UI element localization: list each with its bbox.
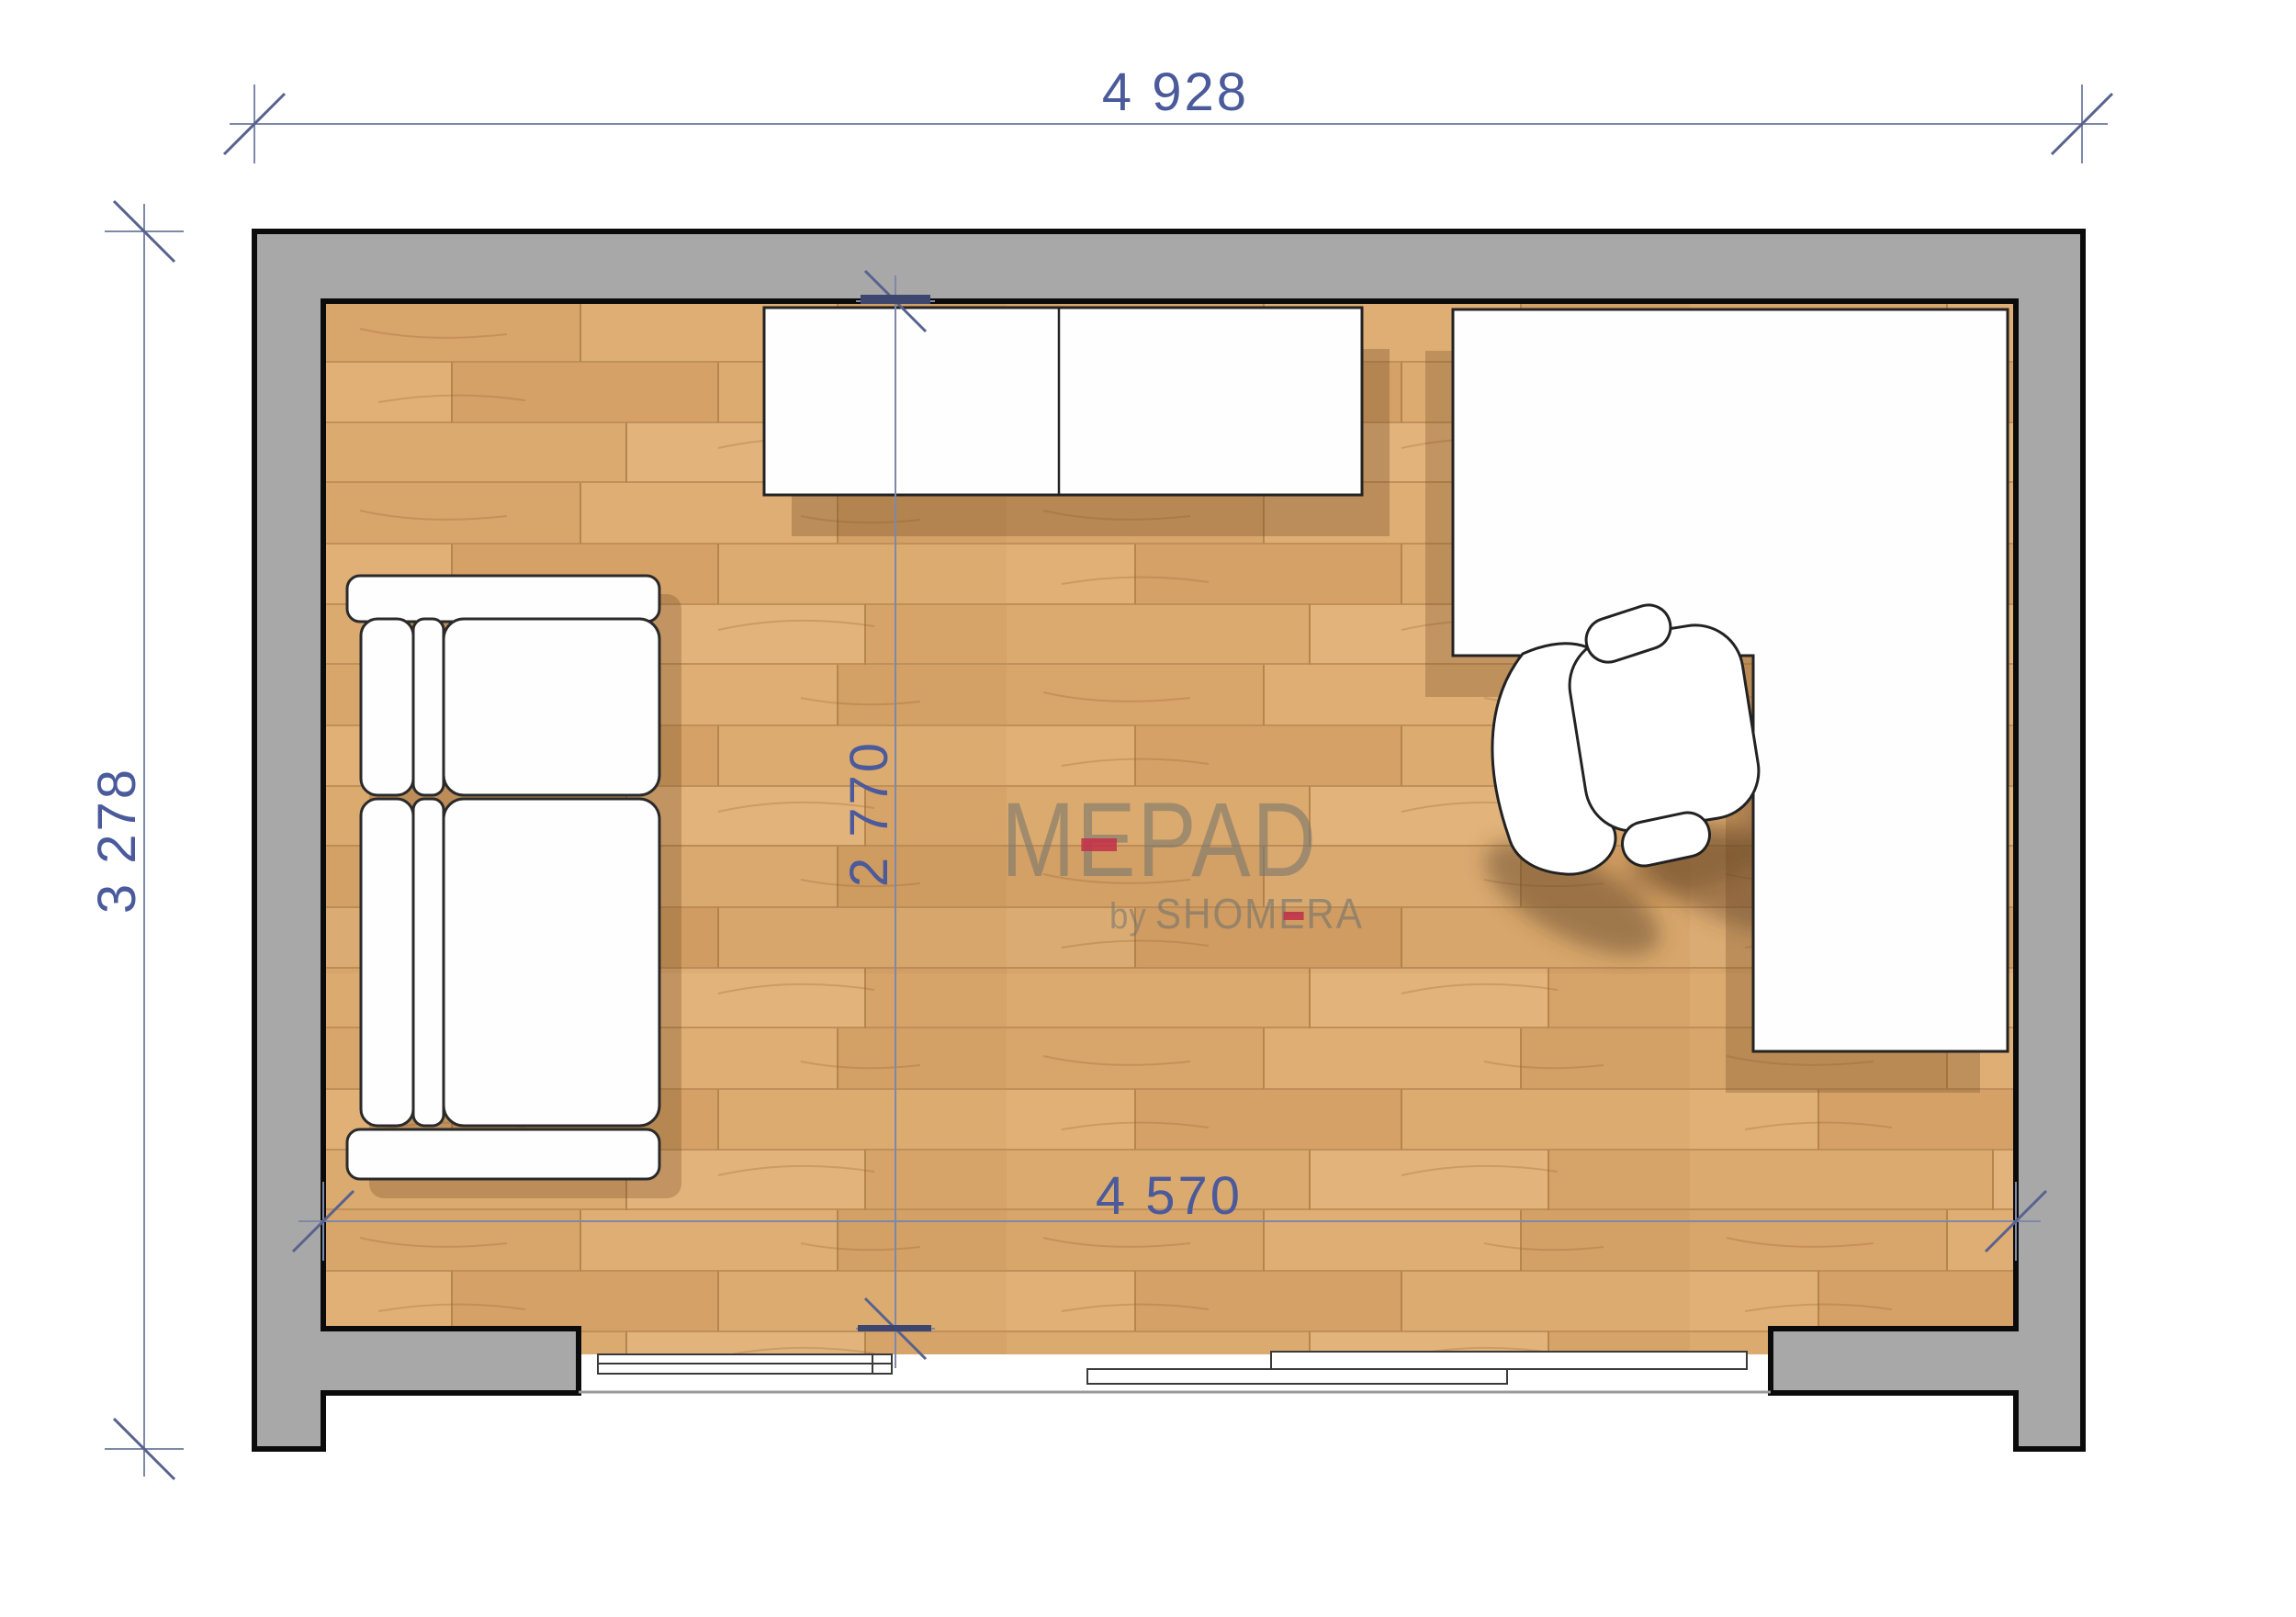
brand-logo: MEPAD bySHOMERA [1001, 788, 1387, 944]
sliding-door-leaf-outer [1271, 1352, 1747, 1369]
floor-plan: 4 928 3 278 2 770 4 570 MEPAD bySHOMERA [0, 0, 2296, 1617]
brand-logo-text: MEPAD [1001, 781, 1318, 899]
cabinet-body [764, 308, 1362, 495]
brand-logo-by: by [1109, 896, 1147, 937]
sofa-seat-cushion-2 [444, 799, 659, 1126]
sofa-armrest-bottom [347, 1129, 659, 1179]
brand-logo-red-dash [1081, 838, 1117, 851]
cabinet [764, 308, 1362, 495]
sofa-seat-cushion-1 [444, 619, 659, 795]
brand-logo-brand: SHOMERA [1155, 890, 1364, 938]
dim-label-outer-width: 4 928 [1084, 66, 1267, 119]
sofa-back-rail-2 [413, 799, 444, 1126]
dim-tick-bar-bottom [858, 1325, 931, 1331]
dim-label-outer-height: 3 278 [91, 730, 144, 950]
sliding-door-leaf-inner [1087, 1369, 1507, 1384]
sofa-armrest-top [347, 576, 659, 622]
brand-logo-name: MEPAD [1001, 788, 1318, 893]
brand-logo-subtitle: bySHOMERA [1109, 893, 1364, 935]
door-threshold-floor [579, 1329, 1771, 1354]
sofa [347, 576, 659, 1179]
brand-logo-red-dash-small [1284, 912, 1304, 920]
sofa-back-cushion-2 [361, 799, 413, 1126]
sofa-back-rail-1 [413, 619, 444, 795]
dim-tick-bar-top [861, 295, 930, 304]
dim-label-interior-width: 4 570 [1077, 1170, 1261, 1223]
dim-label-interior-height: 2 770 [843, 703, 896, 924]
sofa-back-cushion-1 [361, 619, 413, 795]
